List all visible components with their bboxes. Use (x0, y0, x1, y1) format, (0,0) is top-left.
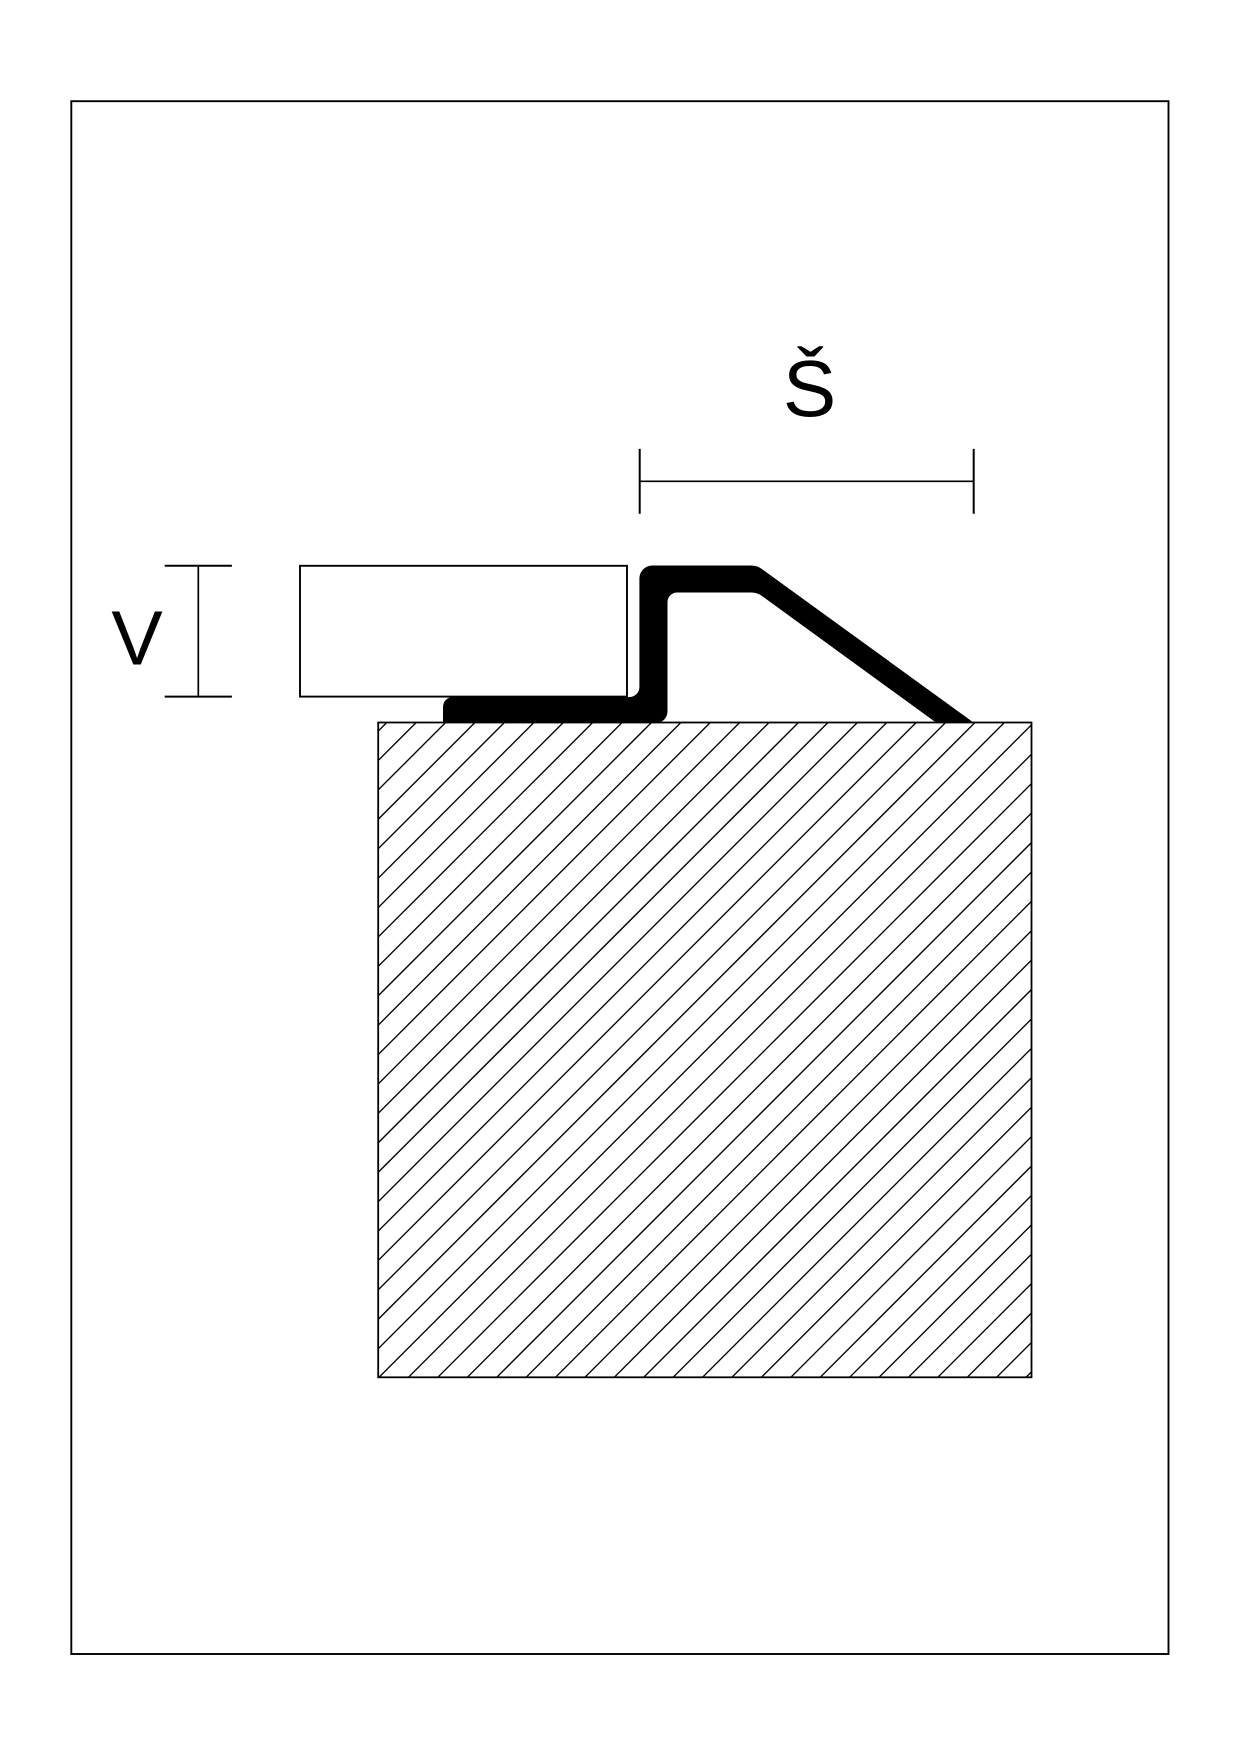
svg-text:V: V (111, 595, 163, 681)
svg-text:Š: Š (783, 344, 836, 433)
